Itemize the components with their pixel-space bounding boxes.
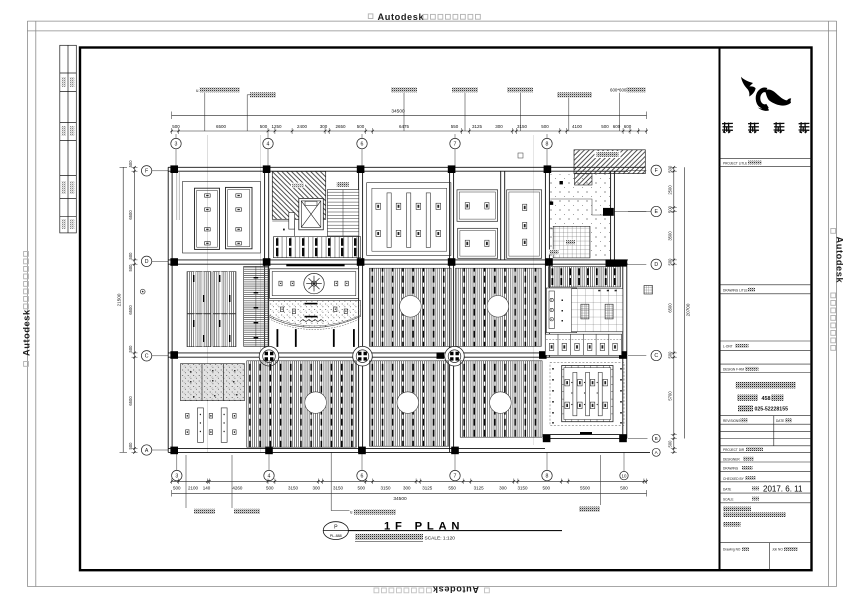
svg-text:1250: 1250	[271, 124, 282, 129]
svg-text:500: 500	[668, 165, 673, 173]
svg-text:3125: 3125	[422, 485, 433, 490]
svg-text:20700: 20700	[685, 303, 690, 316]
svg-text:DESIGNER: DESIGNER	[723, 457, 740, 461]
svg-text:34500: 34500	[393, 496, 407, 502]
svg-text:E: E	[654, 209, 658, 215]
svg-text:6500: 6500	[128, 210, 133, 220]
svg-text:500: 500	[172, 124, 180, 129]
svg-text:C: C	[145, 354, 149, 360]
svg-text:6500: 6500	[128, 305, 133, 315]
svg-text:458: 458	[762, 396, 771, 402]
svg-text:600: 600	[613, 124, 621, 129]
svg-text:5700: 5700	[668, 391, 673, 401]
svg-text:2400: 2400	[297, 124, 308, 129]
svg-text:3150: 3150	[288, 485, 299, 490]
svg-text:Job NO: Job NO	[772, 548, 783, 552]
svg-text:21500: 21500	[116, 293, 121, 306]
svg-text:500: 500	[668, 440, 673, 448]
svg-text:4: 4	[267, 142, 270, 148]
svg-text:5500: 5500	[580, 485, 591, 490]
svg-text:500: 500	[128, 252, 133, 260]
svg-text:3150: 3150	[517, 485, 528, 490]
svg-text:3125: 3125	[474, 485, 485, 490]
svg-text:3500: 3500	[668, 231, 673, 241]
svg-text:500: 500	[668, 205, 673, 213]
svg-text:300: 300	[499, 485, 507, 490]
svg-text:4260: 4260	[232, 485, 243, 490]
svg-text:CHECKED BY: CHECKED BY	[723, 477, 745, 481]
svg-text:8: 8	[546, 474, 549, 480]
svg-text:500: 500	[358, 485, 366, 490]
svg-text:34500: 34500	[391, 109, 405, 115]
svg-text:DESIGN F-RM: DESIGN F-RM	[723, 368, 744, 372]
svg-text:2650: 2650	[335, 124, 346, 129]
svg-text:P: P	[334, 524, 338, 530]
svg-text:Drawing NO: Drawing NO	[723, 548, 741, 552]
svg-text:10: 10	[622, 474, 627, 479]
svg-text:1F PLAN: 1F PLAN	[384, 520, 464, 532]
svg-text:6: 6	[361, 474, 364, 480]
svg-text:3150: 3150	[380, 485, 391, 490]
svg-text:500: 500	[620, 485, 628, 490]
svg-text:500: 500	[668, 258, 673, 266]
svg-text:DATE: DATE	[723, 487, 731, 491]
svg-text:PROJECT DIR: PROJECT DIR	[723, 448, 745, 452]
svg-text:4100: 4100	[572, 124, 583, 129]
svg-text:DRAWING: DRAWING	[723, 467, 739, 471]
svg-text:6475: 6475	[399, 124, 410, 129]
svg-text:D: D	[145, 259, 149, 265]
svg-text:600: 600	[624, 124, 632, 129]
svg-text:PL-888: PL-888	[330, 534, 342, 538]
svg-text:DRAWING LITLE: DRAWING LITLE	[723, 288, 748, 292]
svg-text:C: C	[654, 353, 658, 359]
svg-text:300: 300	[495, 124, 503, 129]
svg-text:F: F	[145, 169, 148, 175]
svg-text:F: F	[655, 168, 658, 174]
svg-text:500: 500	[173, 485, 181, 490]
svg-text:L-ONT: L-ONT	[723, 345, 733, 349]
svg-text:550: 550	[448, 485, 456, 490]
svg-text:500: 500	[668, 351, 673, 359]
svg-text:Autodesk: Autodesk	[835, 237, 845, 284]
svg-text:8: 8	[546, 142, 549, 148]
svg-text:6500: 6500	[216, 124, 227, 129]
svg-text:Autodesk: Autodesk	[22, 309, 32, 356]
svg-text:DATE: DATE	[776, 419, 784, 423]
svg-text:500: 500	[128, 345, 133, 353]
svg-text:500: 500	[260, 124, 268, 129]
svg-text:3: 3	[175, 474, 178, 480]
svg-text:025-52228155: 025-52228155	[755, 407, 789, 413]
svg-text:6500: 6500	[668, 303, 673, 313]
svg-text:3: 3	[175, 142, 178, 148]
svg-text:3150: 3150	[333, 485, 344, 490]
svg-text:2017. 6. 11: 2017. 6. 11	[763, 485, 803, 494]
svg-text:500: 500	[128, 160, 133, 168]
svg-text:500: 500	[357, 124, 365, 129]
svg-text:7: 7	[454, 142, 457, 148]
svg-text:3125: 3125	[472, 124, 483, 129]
svg-text:6500: 6500	[128, 396, 133, 406]
svg-text:SCALE: 1:120: SCALE: 1:120	[425, 536, 456, 542]
svg-text:PROJECT LITLE: PROJECT LITLE	[723, 161, 747, 165]
svg-text:2100: 2100	[188, 485, 199, 490]
svg-text:2500: 2500	[668, 185, 673, 195]
svg-text:600*600: 600*600	[610, 88, 627, 93]
svg-text:SCALE: SCALE	[723, 497, 733, 501]
svg-text:B: B	[655, 436, 658, 441]
svg-text:D: D	[654, 262, 658, 268]
svg-text:300: 300	[313, 485, 321, 490]
svg-text:500: 500	[128, 442, 133, 450]
svg-text:7: 7	[454, 474, 457, 480]
svg-text:300: 300	[320, 124, 328, 129]
svg-text:REVISIONS: REVISIONS	[723, 419, 740, 423]
svg-text:140: 140	[203, 485, 211, 490]
svg-text:500: 500	[601, 124, 609, 129]
svg-text:A: A	[145, 448, 149, 454]
svg-text:Autodesk: Autodesk	[378, 12, 425, 22]
svg-text:Autodesk: Autodesk	[432, 585, 479, 595]
svg-text:500: 500	[128, 264, 133, 272]
svg-text:500: 500	[543, 485, 551, 490]
svg-text:300: 300	[403, 485, 411, 490]
svg-text:3150: 3150	[517, 124, 528, 129]
svg-text:6: 6	[361, 142, 364, 148]
svg-text:550: 550	[451, 124, 459, 129]
svg-text:500: 500	[541, 124, 549, 129]
svg-text:500: 500	[266, 485, 274, 490]
